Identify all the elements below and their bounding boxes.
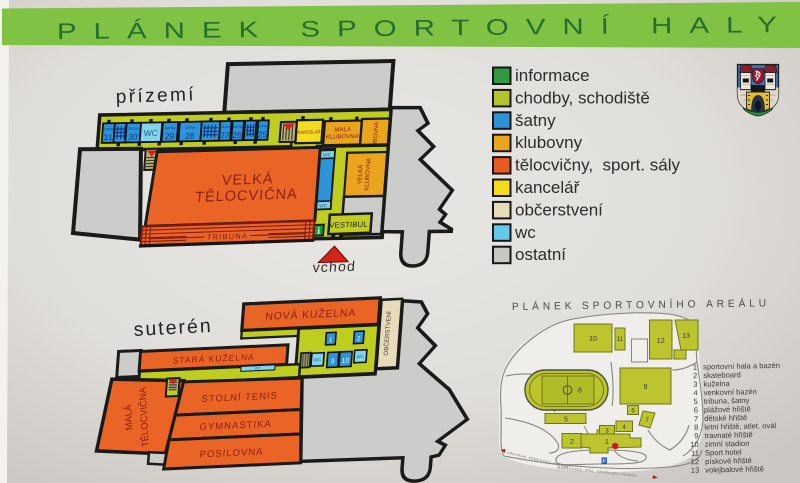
svg-text:13: 13 [691,466,700,475]
svg-text:VELKÁ: VELKÁ [356,165,364,184]
svg-text:volejbalové hřiště: volejbalové hřiště [705,464,764,474]
svg-text:TĚLOCVIČNA: TĚLOCVIČNA [195,185,299,205]
svg-text:P: P [602,459,606,465]
svg-text:KANCELÁŘ: KANCELÁŘ [297,129,321,134]
svg-text:klubovny: klubovny [515,133,583,152]
svg-text:ŠATNA: ŠATNA [258,123,270,128]
svg-text:MALÁ: MALÁ [123,403,135,431]
svg-text:2: 2 [570,439,574,446]
svg-text:tělocvičny, sport. sály: tělocvičny, sport. sály [515,156,681,175]
svg-text:VELKÁ: VELKÁ [221,170,274,189]
svg-text:13: 13 [682,333,690,340]
svg-text:občerstvení: občerstvení [515,200,603,219]
svg-text:WC: WC [314,357,322,362]
svg-text:chodby, schodiště: chodby, schodiště [515,88,650,107]
svg-text:TRIBUNA: TRIBUNA [206,231,248,241]
svg-text:WC: WC [356,354,364,359]
svg-text:8: 8 [578,388,582,395]
svg-text:KLUBOVNA: KLUBOVNA [326,134,359,141]
svg-text:10: 10 [341,358,349,365]
svg-text:informace: informace [515,66,590,85]
svg-text:30: 30 [128,132,138,142]
svg-text:šatny: šatny [515,111,556,130]
svg-text:WC: WC [323,152,332,158]
svg-text:WC: WC [143,128,158,138]
svg-text:31: 31 [103,132,113,142]
svg-text:9: 9 [330,358,335,365]
svg-text:25: 25 [257,129,267,139]
svg-text:12: 12 [657,338,665,345]
svg-text:26: 26 [232,130,242,140]
svg-text:1: 1 [605,439,609,446]
svg-text:10: 10 [589,336,597,343]
svg-text:přízemí: přízemí [115,84,196,108]
svg-text:ŠATNA: ŠATNA [233,124,245,129]
svg-text:VESTIBUL: VESTIBUL [329,220,368,230]
svg-text:ŠATNA: ŠATNA [185,125,197,130]
svg-text:9: 9 [644,384,648,391]
svg-text:ŠATNA: ŠATNA [103,126,115,131]
svg-text:vchod: vchod [312,258,357,275]
svg-text:28: 28 [185,131,195,141]
svg-text:11: 11 [617,337,624,343]
svg-text:ŠATNA: ŠATNA [165,125,177,130]
svg-text:WC: WC [255,366,262,370]
svg-text:ŠATNA: ŠATNA [128,126,140,131]
svg-text:ŠATNA: ŠATNA [220,124,232,129]
svg-text:5: 5 [564,417,568,424]
svg-text:29: 29 [164,131,174,141]
svg-text:wc: wc [514,223,536,242]
svg-text:27: 27 [220,130,230,140]
svg-text:WC: WC [319,203,328,209]
svg-text:ostatní: ostatní [515,245,566,264]
svg-text:kancelář: kancelář [515,178,580,197]
svg-text:suterén: suterén [133,315,213,341]
svg-text:MALÁ: MALÁ [334,126,351,133]
